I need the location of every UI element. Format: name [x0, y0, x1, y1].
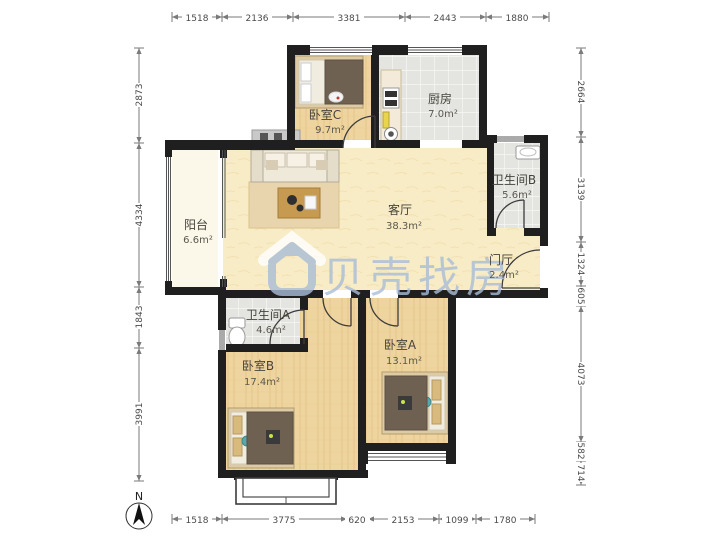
cup — [297, 205, 304, 212]
dim-label: 4073 — [575, 363, 585, 386]
furniture-bathroom-a — [229, 318, 245, 347]
dim-label: 3991 — [135, 403, 145, 426]
teapot — [287, 195, 297, 205]
pillow — [432, 404, 441, 424]
room-area-bedroom-a: 13.1m² — [386, 356, 422, 367]
sink-drain — [388, 131, 394, 137]
dim-label: 2873 — [135, 84, 145, 107]
wall-bathroom-a-right-1 — [300, 298, 308, 310]
wall-kitchen-bottom-1 — [375, 140, 420, 148]
room-label-kitchen: 厨房 — [428, 91, 452, 106]
dim-label: 1880 — [506, 14, 529, 24]
dim-label: 1780 — [494, 516, 517, 526]
pillow — [233, 438, 242, 456]
ruler-bottom: 1518 3775 620 2153 1099 1780 — [172, 513, 535, 526]
sofa-arm-left — [251, 150, 263, 182]
throw-pillow — [266, 160, 278, 170]
watermark-text: 贝壳找房 — [322, 253, 514, 302]
dim-label: 4334 — [135, 203, 145, 226]
dim-label: 2153 — [392, 516, 415, 526]
room-label-bedroom-a: 卧室A — [384, 337, 417, 352]
sofa-cushion — [287, 153, 307, 167]
wall-balcony-jamb-top — [165, 143, 172, 157]
sofa-arm-right — [327, 150, 339, 182]
bed-tray — [398, 396, 412, 410]
room-label-bathroom-a: 卫生间A — [246, 308, 291, 322]
room-label-bathroom-b: 卫生间B — [492, 173, 536, 187]
furniture-bedroom-b — [228, 408, 294, 468]
dim-label: 582 — [575, 442, 585, 459]
wall-bathroom-a-bottom — [218, 344, 308, 352]
pillow — [301, 63, 311, 81]
room-area-kitchen: 7.0m² — [428, 109, 458, 120]
magazine — [305, 196, 316, 209]
pillow — [301, 84, 311, 102]
furniture-bathroom-b — [516, 146, 540, 159]
dim-label: 1843 — [135, 306, 145, 329]
room-area-bathroom-b: 5.6m² — [502, 190, 532, 201]
room-area-balcony: 6.6m² — [183, 235, 213, 246]
room-area-bedroom-b: 17.4m² — [244, 377, 280, 388]
dim-label: 3381 — [338, 14, 361, 24]
bed-decor-dot — [337, 97, 340, 100]
wall-bay-a-cap-right — [446, 451, 456, 464]
wall-balcony-bottom — [165, 287, 225, 295]
wall-slider-jamb-bottom — [220, 279, 227, 287]
room-area-living: 38.3m² — [386, 221, 422, 232]
dim-label: 1518 — [186, 516, 209, 526]
dim-label: 620 — [348, 516, 365, 526]
furniture-bedroom-c — [295, 56, 363, 108]
wall-bedroom-c-bottom — [287, 140, 343, 148]
floor-plan-canvas: 贝壳找房 卧室C 9.7m² 厨房 7.0m² 阳台 6.6m² 客厅 38.3… — [0, 0, 720, 540]
wall-upper-left — [165, 140, 295, 150]
wall-kitchen-right — [479, 45, 487, 143]
wall-left — [218, 287, 226, 478]
room-label-living: 客厅 — [388, 202, 412, 217]
wall-bathroom-b-bottom-1 — [487, 228, 496, 236]
tray-dot — [269, 434, 273, 438]
wall-slider-jamb-top — [220, 150, 227, 158]
wall-bay-a-cap-left — [360, 451, 368, 464]
room-area-bathroom-a: 4.6m² — [256, 325, 286, 336]
room-area-foyer: 2.4m² — [489, 270, 519, 281]
dim-label: 714 — [575, 464, 585, 481]
ruler-top: 1518 2136 3381 2443 1880 — [172, 11, 549, 24]
dim-label: 3775 — [273, 516, 296, 526]
room-label-bedroom-b: 卧室B — [242, 358, 274, 373]
wall-bathroom-b-bottom-2 — [524, 228, 548, 236]
tv-cabinet-drawer — [274, 133, 282, 140]
room-label-foyer: 门厅 — [489, 252, 513, 267]
compass-north-label: N — [135, 490, 143, 503]
dim-label: 1518 — [186, 14, 209, 24]
wall-right-lower — [540, 288, 548, 298]
ruler-right: 2664 3139 1324 605 4073 582 714 — [575, 48, 587, 485]
wall-bathroom-b-left — [487, 143, 494, 236]
dim-label: 1099 — [446, 516, 469, 526]
tv-cabinet-drawer — [260, 133, 268, 140]
dim-label: 2664 — [575, 81, 585, 104]
dim-label: 605 — [575, 287, 585, 304]
compass: N — [126, 490, 152, 529]
bed-tray — [266, 430, 280, 444]
room-area-bedroom-c: 9.7m² — [315, 125, 345, 136]
pillow — [432, 380, 441, 400]
pillow — [233, 416, 242, 434]
floor-plan-page: 贝壳找房 卧室C 9.7m² 厨房 7.0m² 阳台 6.6m² 客厅 38.3… — [0, 0, 720, 540]
room-label-balcony: 阳台 — [184, 217, 208, 232]
stove-burner — [385, 100, 397, 106]
dim-label: 2443 — [434, 14, 457, 24]
ruler-left: 2873 4334 1843 3991 — [133, 48, 145, 481]
bed-decor — [329, 92, 343, 102]
furniture-bedroom-a — [382, 372, 448, 434]
tray-dot — [401, 400, 405, 404]
wall-bedroom-a-bottom — [358, 443, 456, 451]
wall-bedroom-a-right — [448, 290, 456, 451]
wall-kitchen-bottom-2 — [462, 140, 487, 148]
stove-burner — [385, 91, 397, 97]
dim-label: 1324 — [575, 253, 585, 276]
cutting-board — [383, 112, 389, 128]
wall-bedroom-c-left — [287, 45, 295, 150]
dim-label: 3139 — [575, 178, 585, 201]
furniture-kitchen — [381, 70, 401, 142]
dim-label: 2136 — [246, 14, 269, 24]
throw-pillow — [316, 160, 328, 170]
room-label-bedroom-c: 卧室C — [309, 107, 341, 122]
